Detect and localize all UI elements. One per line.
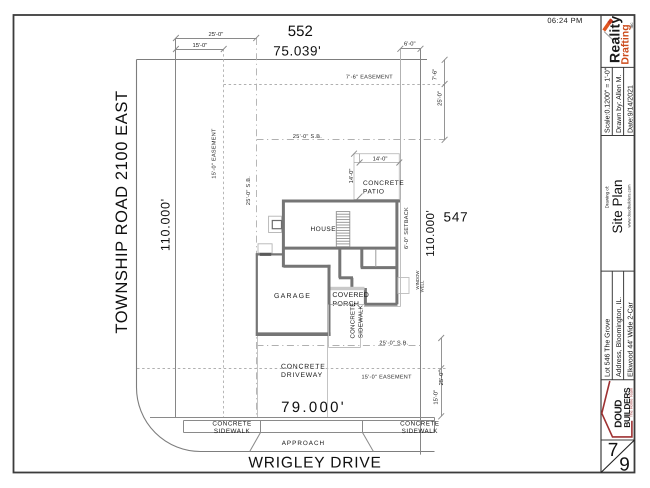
svg-text:Inc: Inc [629,22,634,29]
svg-text:Drawn by: Allen M.: Drawn by: Allen M. [615,75,623,133]
svg-text:552: 552 [288,23,313,40]
svg-text:APPROACH: APPROACH [282,440,325,447]
svg-text:25'-0" S.B.: 25'-0" S.B. [246,176,252,205]
svg-text:CONCRETE: CONCRETE [349,302,356,338]
svg-text:CONCRETE: CONCRETE [363,180,404,187]
svg-text:110.000': 110.000' [425,210,437,257]
svg-text:25'-0" S.B.: 25'-0" S.B. [293,134,322,140]
svg-text:06:24 PM: 06:24 PM [547,16,582,25]
svg-text:WRIGLEY DRIVE: WRIGLEY DRIVE [248,455,381,472]
svg-text:PATIO: PATIO [363,189,385,196]
svg-text:14'-0": 14'-0" [373,156,388,163]
svg-text:Drafting: Drafting [620,24,632,64]
svg-text:SIDEWALK: SIDEWALK [214,428,251,435]
svg-text:547: 547 [444,209,469,224]
svg-text:HOUSE: HOUSE [310,226,336,233]
svg-text:WELL: WELL [419,280,424,292]
svg-text:6'-0": 6'-0" [404,41,416,48]
svg-text:Lot 546 The Grove: Lot 546 The Grove [604,319,612,377]
svg-text:COVERED: COVERED [332,292,369,299]
svg-text:9: 9 [619,454,630,475]
svg-text:Date:9/14/2021: Date:9/14/2021 [626,85,634,133]
svg-text:7'-6": 7'-6" [431,69,438,81]
svg-text:75.039': 75.039' [273,43,321,58]
svg-text:25'-0": 25'-0" [438,371,445,386]
svg-text:GARAGE: GARAGE [274,293,311,300]
svg-text:www.doudbuilders.com: www.doudbuilders.com [627,184,632,228]
svg-text:15'-0": 15'-0" [193,42,208,49]
svg-text:7: 7 [608,440,619,461]
svg-text:Drawing of:: Drawing of: [605,186,610,209]
svg-text:15'-0" EASEMENT: 15'-0" EASEMENT [361,374,412,380]
svg-text:25'-0": 25'-0" [209,31,224,38]
svg-text:SIDEWALK: SIDEWALK [402,428,439,435]
svg-text:CONCRETE: CONCRETE [400,421,439,428]
svg-text:7'-6" EASEMENT: 7'-6" EASEMENT [346,75,393,81]
svg-text:The Home Team: The Home Team [629,387,634,417]
svg-text:DRIVEWAY: DRIVEWAY [281,372,323,379]
svg-text:15'-0" EASEMENT: 15'-0" EASEMENT [212,128,218,179]
svg-text:15'-0": 15'-0" [433,390,440,405]
svg-text:SIDEWALK: SIDEWALK [357,305,364,338]
svg-text:6'-0" SETBACK: 6'-0" SETBACK [404,207,410,249]
svg-text:TOWNSHIP ROAD 2100 EAST: TOWNSHIP ROAD 2100 EAST [113,90,131,333]
svg-text:79.000': 79.000' [281,399,346,416]
svg-text:CONCRETE: CONCRETE [281,363,326,370]
svg-text:Address, Bloomington, IL.: Address, Bloomington, IL. [615,297,623,377]
svg-text:Scale:0.1200" = 1'-0": Scale:0.1200" = 1'-0" [604,67,612,133]
svg-text:Elkwood 44' Wide 2-Car: Elkwood 44' Wide 2-Car [626,301,634,377]
svg-text:Site Plan: Site Plan [610,179,625,233]
svg-text:110.000': 110.000' [158,198,172,251]
svg-text:CONCRETE: CONCRETE [212,421,251,428]
svg-text:14'-0": 14'-0" [348,169,355,184]
svg-text:25'-0" S.B.: 25'-0" S.B. [379,341,408,347]
svg-text:25'-0": 25'-0" [437,91,444,106]
